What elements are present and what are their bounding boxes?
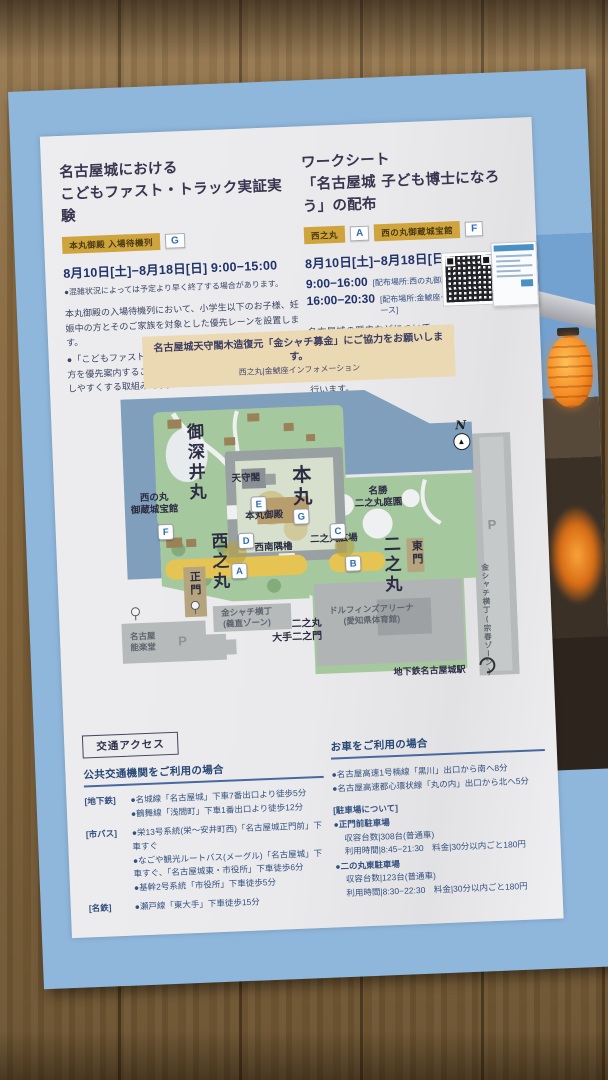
access-section-title: 交通アクセス bbox=[82, 732, 179, 759]
transit-row-citybus: [市バス] ●栄13号系統(栄〜安井町西)「名古屋城正門前」下車すぐ ●なごや観… bbox=[86, 819, 329, 897]
map-marker-f: F bbox=[157, 524, 174, 541]
photo-of-nagoya-castle-flyer: 名古屋城における こどもファスト・トラック実証実験 本丸御殿 入場待機列 G 8… bbox=[0, 0, 608, 1080]
qr-code bbox=[441, 251, 497, 307]
parking-p-east: P bbox=[487, 517, 496, 534]
car-access-column: お車をご利用の場合 ●名古屋高速1号楠線「黒川」出口から南へ8分 ●名古屋高速都… bbox=[330, 731, 550, 901]
map-label-otemon: 二之丸 大手二之門 bbox=[271, 618, 322, 645]
compass-north-icon: N ▲ bbox=[449, 418, 472, 451]
public-transit-heading: 公共交通機関をご利用の場合 bbox=[83, 758, 324, 788]
transit-row-meitetsu: [名鉄] ●瀬戸線「東大手」下車徒歩15分 bbox=[89, 893, 329, 917]
event-dates: 8月10日[土]−8月18日[日] 9:00−15:00 bbox=[63, 254, 298, 282]
worksheet-thumbnail bbox=[490, 241, 539, 307]
location-badge-museum: 西の丸御蔵城宝館 bbox=[374, 221, 461, 241]
map-letter-badge-a: A bbox=[350, 226, 370, 242]
map-label-nohgakudo: 名古屋 能楽堂 bbox=[130, 631, 156, 655]
map-label-kinshachi-yoshinao: 金シャチ横丁 (義直ゾーン) bbox=[221, 606, 273, 631]
map-label-ninomaru-teien: 名勝 二之丸庭園 bbox=[354, 485, 402, 511]
location-badges: 本丸御殿 入場待機列 G bbox=[62, 228, 296, 254]
map-label-seimon: 正門 bbox=[187, 571, 202, 598]
map-label-nishinomaru: 西之丸 bbox=[206, 532, 230, 593]
map-marker-d: D bbox=[238, 532, 255, 549]
parking-p-south: P bbox=[178, 633, 187, 650]
event-title-line2: 「名古屋城 子ども博士になろう」の配布 bbox=[302, 165, 524, 217]
event-title: 名古屋城における こどもファスト・トラック実証実験 bbox=[59, 153, 295, 228]
transit-row-subway: [地下鉄] ●名城線「名古屋城」下車7番出口より徒歩5分 ●鶴舞線「浅間町」下車… bbox=[84, 786, 325, 824]
map-label-seinan-sumiyagura: 西南隅櫓 bbox=[254, 541, 292, 554]
map-marker-c: C bbox=[330, 523, 347, 540]
flyer-page: 名古屋城における こどもファスト・トラック実証実験 本丸御殿 入場待機列 G 8… bbox=[40, 117, 564, 938]
map-label-tenshukaku: 天守閣 bbox=[231, 472, 260, 485]
qr-pattern bbox=[445, 255, 493, 303]
map-label-ofukemaru: 御深井丸 bbox=[181, 422, 205, 503]
orange-lantern-photo bbox=[546, 335, 594, 409]
map-label-honmaru: 本丸 bbox=[287, 464, 312, 509]
worksheet-thumb-header bbox=[494, 244, 534, 252]
lantern-glow-photo bbox=[548, 506, 606, 603]
location-badge-nishinomaru: 西之丸 bbox=[304, 226, 346, 245]
parking-lot-2: ●二の丸東駐車場 収容台数|123台(普通車) 利用時間|8:30−22:30 … bbox=[335, 851, 550, 901]
map-label-museum: 西の丸 御蔵城宝館 bbox=[130, 492, 178, 518]
slot-time: 9:00−16:00 bbox=[306, 275, 368, 291]
access-section: 交通アクセス 公共交通機関をご利用の場合 [地下鉄] ●名城線「名古屋城」下車7… bbox=[82, 717, 545, 759]
map-marker-e: E bbox=[250, 496, 267, 513]
event-title: ワークシート 「名古屋城 子ども博士になろう」の配布 bbox=[301, 143, 523, 217]
castle-grounds-map: 御深井丸 天守閣 本丸 本丸御殿 西南隅櫓 西之丸 西の丸 御蔵城宝館 正門 名… bbox=[76, 376, 521, 715]
car-access-heading: お車をご利用の場合 bbox=[330, 731, 545, 760]
parking-lot-1: ●正門前駐車場 収容台数|308台(普通車) 利用時間|8:45−21:30 料… bbox=[333, 809, 548, 859]
flyer-back-page: 名古屋城における こどもファスト・トラック実証実験 本丸御殿 入場待機列 G 8… bbox=[8, 69, 608, 989]
location-badge: 本丸御殿 入場待機列 bbox=[62, 233, 160, 254]
map-label-ninomaru: 二之丸 bbox=[378, 535, 402, 596]
event-note: ●混雑状況によっては予定より早く終了する場合があります。 bbox=[64, 278, 298, 298]
map-marker-a: A bbox=[231, 563, 248, 580]
map-letter-badge-g: G bbox=[165, 233, 185, 249]
map-letter-badge-f: F bbox=[465, 221, 484, 237]
slot-time: 16:00−20:30 bbox=[306, 292, 375, 309]
public-transit-column: 公共交通機関をご利用の場合 [地下鉄] ●名城線「名古屋城」下車7番出口より徒歩… bbox=[83, 758, 329, 922]
event-title-line2: こどもファスト・トラック実証実験 bbox=[60, 174, 296, 227]
map-label-higashimon: 東門 bbox=[409, 540, 424, 567]
map-label-dolphins-arena: ドルフィンズアリーナ (愛知県体育館) bbox=[329, 602, 415, 628]
map-marker-b: B bbox=[345, 555, 362, 572]
map-marker-g: G bbox=[293, 508, 310, 525]
location-badges: 西之丸 A 西の丸御蔵城宝館 F bbox=[304, 219, 525, 245]
